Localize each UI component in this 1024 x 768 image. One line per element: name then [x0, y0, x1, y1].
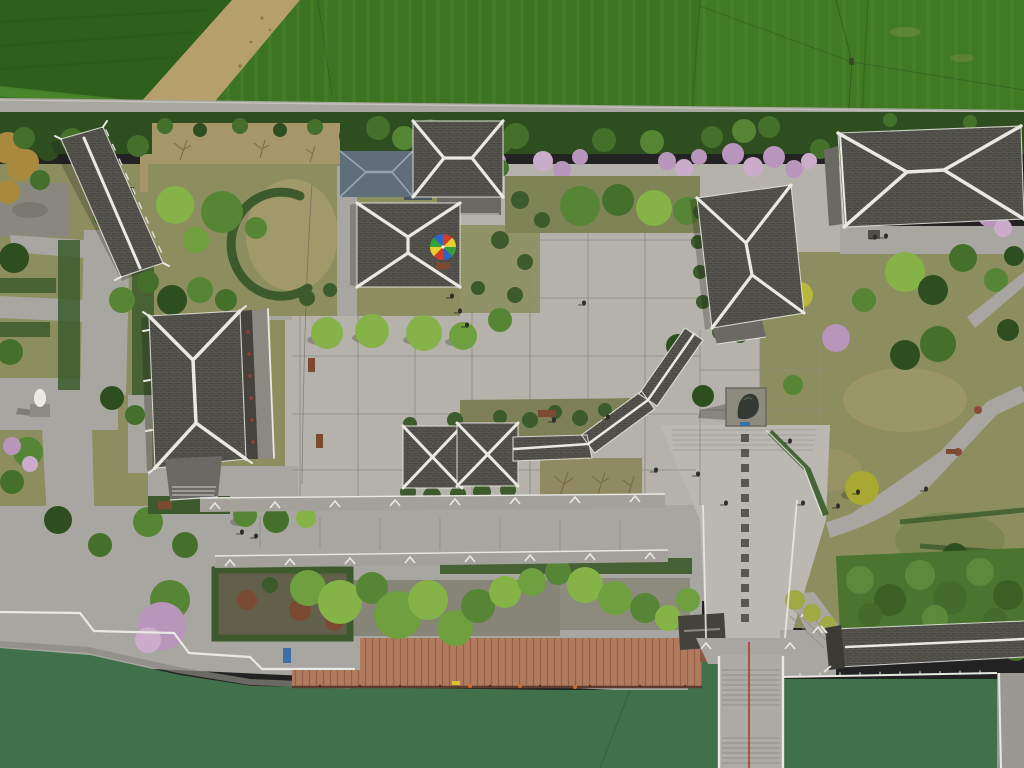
lakeside-corridor-roof [821, 621, 1024, 672]
aerial-photo-temple-complex: Aerial drone photograph, looking straigh… [0, 0, 1024, 768]
canal-water-east [782, 679, 997, 768]
deck-marker [452, 681, 460, 685]
hall-porch [165, 456, 222, 500]
twin-garden-pavilions [403, 423, 518, 488]
info-board [283, 648, 291, 663]
aerial-photo-canvas: Aerial drone photograph, looking straigh… [0, 0, 1024, 768]
